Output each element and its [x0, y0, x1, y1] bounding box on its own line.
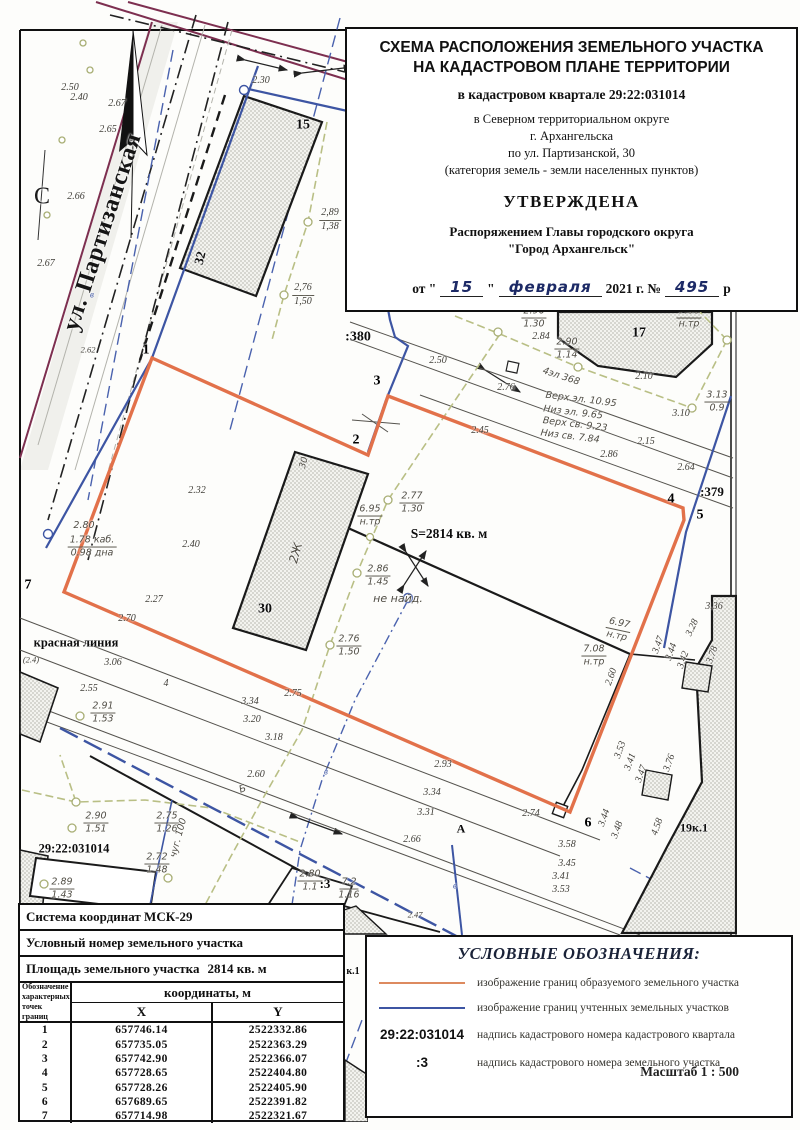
map-label: 2.66 [403, 835, 421, 846]
coord-system-row: Система координат МСК-29 [20, 905, 343, 931]
parcel-number-symbol: :3 [367, 1055, 477, 1070]
map-label: 2.40 [182, 540, 200, 551]
map-label: 3.36 [705, 602, 723, 613]
y-cell: 2522404.80 [213, 1066, 343, 1080]
approval-date-line: от " 15 " февраля 2021 г. № 495 р [347, 278, 796, 297]
parcel-number-label: :379 [700, 485, 724, 499]
address-block: в Северном территориальном округе г. Арх… [347, 111, 796, 179]
map-label: 3.45 [558, 859, 576, 870]
page: { "colors":{"parcel_new":"#e2714a","parc… [0, 0, 800, 1130]
point-label: 6 [585, 817, 592, 832]
point-id-cell: 5 [20, 1080, 72, 1094]
x-cell: 657728.65 [72, 1066, 213, 1080]
map-label: 3.53 [552, 885, 570, 896]
point-label: 1 [143, 344, 150, 359]
map-label: 2.70 [118, 614, 136, 625]
map-label: 3.31 [417, 808, 435, 819]
legend-item: 29:22:031014 надпись кадастрового номера… [367, 1027, 791, 1042]
map-label: в [324, 767, 328, 776]
legend-title: УСЛОВНЫЕ ОБОЗНАЧЕНИЯ: [367, 944, 791, 964]
x-cell: 657742.90 [72, 1052, 213, 1066]
map-label: 30 [258, 603, 272, 618]
new-boundary-swatch [379, 982, 465, 984]
map-label: 2.80 [73, 521, 94, 531]
x-column-header: X [72, 1003, 213, 1021]
map-label: 15 [296, 119, 310, 134]
point-id-cell: 3 [20, 1052, 72, 1066]
fence-lines [90, 528, 695, 932]
area-row: Площадь земельного участка 2814 кв. м [20, 957, 343, 983]
north-arrow-letter: С [34, 184, 50, 209]
map-label: 3.06 [104, 658, 122, 669]
area-value: 2814 кв. м [207, 961, 266, 977]
approved-stamp: УТВЕРЖДЕНА [347, 192, 796, 212]
y-column-header: Y [213, 1003, 343, 1021]
point-id-cell: 2 [20, 1037, 72, 1051]
area-label: S=2814 кв. м [411, 527, 488, 541]
point-id-cell: 7 [20, 1109, 72, 1123]
map-label: 2.50 [429, 356, 447, 367]
table-row: 7657714.982522321.67 [20, 1109, 343, 1123]
coordinates-header: координаты, м [72, 983, 343, 1003]
scale-label: Масштаб 1 : 500 [640, 1064, 739, 1080]
map-label: 2.74 [522, 809, 540, 820]
table-header: Обозначение характерных точек границ коо… [20, 983, 343, 1023]
y-cell: 2522405.90 [213, 1080, 343, 1094]
table-body: 1657746.142522332.862657735.052522363.29… [20, 1023, 343, 1123]
point-label: 4 [668, 493, 675, 508]
parcel-number-label: :380 [345, 331, 371, 346]
legend-item: изображение границ учтенных земельных уч… [367, 1002, 791, 1014]
map-label: 2.45 [471, 426, 489, 437]
x-cell: 657714.98 [72, 1109, 213, 1123]
map-label: 2.901.51 [83, 812, 108, 835]
map-label: 2.75 [284, 689, 302, 700]
map-label: 3.34 [423, 788, 441, 799]
map-label: 2.901.14 [554, 338, 579, 361]
y-cell: 2522321.67 [213, 1109, 343, 1123]
y-cell: 2522332.86 [213, 1023, 343, 1037]
map-label: 3.18 [265, 733, 283, 744]
map-label: 3.130.9 [704, 391, 729, 414]
point-id-cell: 6 [20, 1095, 72, 1109]
table-row: 3657742.902522366.07 [20, 1052, 343, 1066]
y-cell: 2522366.07 [213, 1052, 343, 1066]
title-block: СХЕМА РАСПОЛОЖЕНИЯ ЗЕМЕЛЬНОГО УЧАСТКА НА… [345, 27, 798, 312]
quarter-number-symbol: 29:22:031014 [367, 1027, 477, 1042]
map-label: 2.861.45 [365, 565, 390, 588]
legend: УСЛОВНЫЕ ОБОЗНАЧЕНИЯ: изображение границ… [365, 935, 793, 1118]
map-label: 2.66 [67, 192, 85, 203]
point-label: 3 [374, 375, 381, 390]
map-label: 6.95н.тр [357, 505, 382, 528]
registered-boundary-swatch [379, 1007, 465, 1009]
coordinates-table: Система координат МСК-29 Условный номер … [18, 903, 345, 1122]
map-label: в [453, 881, 457, 890]
map-label: 2.30 [252, 76, 270, 87]
map-label: 2.86 [600, 450, 618, 461]
map-label: 7.21.16 [338, 878, 359, 901]
handwritten-day: 15 [440, 278, 483, 297]
map-label: к.1 [346, 967, 359, 978]
x-cell: 657735.05 [72, 1037, 213, 1051]
map-label: 2.62 [81, 346, 96, 355]
map-label: 4 [164, 679, 169, 690]
legend-item: изображение границ образуемого земельног… [367, 977, 791, 989]
map-label: в [90, 290, 94, 299]
map-label: 19к.1 [680, 822, 708, 835]
map-label: 2.67 [108, 99, 126, 110]
map-label: 2.32 [188, 486, 206, 497]
map-label: 1.78 каб.0.98 дна [68, 536, 117, 559]
map-label: 2.771.30 [399, 492, 424, 515]
map-label: (2.4) [23, 656, 39, 665]
map-label: 2,761,50 [292, 283, 314, 307]
map-label: 17 [632, 327, 646, 342]
map-label: 2.27 [145, 595, 163, 606]
map-label: 2.40 [70, 93, 88, 104]
cadastral-quarter-line: в кадастровом квартале 29:22:031014 [347, 87, 796, 103]
point-label: 2 [353, 434, 360, 449]
point-id-cell: 1 [20, 1023, 72, 1037]
table-row: 5657728.262522405.90 [20, 1080, 343, 1094]
map-label: 3.10 [672, 409, 690, 420]
x-cell: 657746.14 [72, 1023, 213, 1037]
map-label: 2.76 [497, 383, 515, 394]
quarter-label: 29:22:031014 [39, 842, 110, 855]
document-title: СХЕМА РАСПОЛОЖЕНИЯ ЗЕМЕЛЬНОГО УЧАСТКА НА… [347, 38, 796, 78]
point-id-cell: 4 [20, 1066, 72, 1080]
handwritten-month: февраля [499, 278, 602, 297]
point-label: 7 [25, 579, 32, 594]
y-cell: 2522363.29 [213, 1037, 343, 1051]
map-label: 2.801.1 [297, 870, 322, 893]
order-text: Распоряжением Главы городского округа "Г… [347, 223, 796, 258]
map-label: 2.84 [532, 332, 550, 343]
map-label: 2.911.53 [90, 702, 115, 725]
table-row: 6657689.652522391.82 [20, 1095, 343, 1109]
map-label: 2.60 [247, 770, 265, 781]
point-label: 5 [697, 509, 704, 524]
table-row: 1657746.142522332.86 [20, 1023, 343, 1037]
handwritten-number: 495 [665, 278, 719, 297]
y-cell: 2522391.82 [213, 1095, 343, 1109]
map-label: 2.55 [80, 684, 98, 695]
map-label: А [457, 823, 466, 836]
table-row: 2657735.052522363.29 [20, 1037, 343, 1051]
map-label: 2.93 [434, 760, 452, 771]
red-line-label: красная линия [34, 636, 119, 649]
map-label: 3.20 [243, 715, 261, 726]
map-label: 3.34 [241, 697, 259, 708]
x-cell: 657728.26 [72, 1080, 213, 1094]
x-cell: 657689.65 [72, 1095, 213, 1109]
map-label: не найд. [373, 593, 423, 605]
table-row: 4657728.652522404.80 [20, 1066, 343, 1080]
map-label: 2.65 [99, 125, 117, 136]
map-label: 6.97н.тр [603, 616, 632, 644]
conditional-number-row: Условный номер земельного участка [20, 931, 343, 957]
map-label: 2,891,38 [319, 208, 341, 232]
map-label: 2.891.43 [49, 878, 74, 901]
map-label: 3.58 [558, 840, 576, 851]
map-label: 2.15 [637, 437, 655, 448]
points-column-header: Обозначение характерных точек границ [20, 983, 72, 1021]
map-label: 2.47 [408, 911, 423, 920]
map-label: 7.08н.тр [581, 645, 606, 668]
map-label: 2.761.50 [336, 635, 361, 658]
map-label: 2.67 [37, 259, 55, 270]
map-label: 2.10 [635, 372, 653, 383]
map-label: 3.41 [552, 872, 570, 883]
map-label: 2.721.48 [144, 853, 169, 876]
map-label: 2.64 [677, 463, 695, 474]
